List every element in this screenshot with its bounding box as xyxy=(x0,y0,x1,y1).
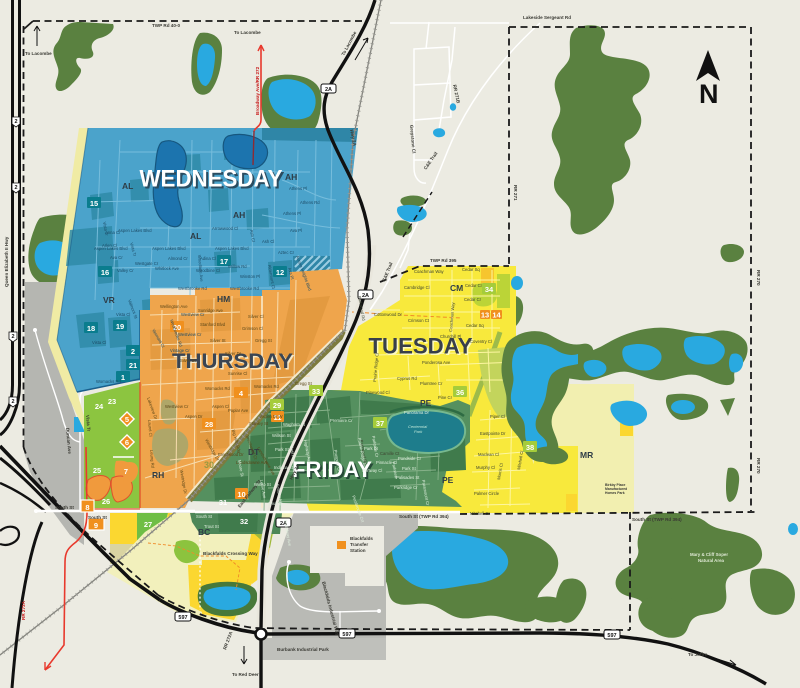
svg-text:2: 2 xyxy=(131,347,135,356)
svg-text:8: 8 xyxy=(85,503,89,512)
svg-text:AH: AH xyxy=(285,172,297,182)
svg-text:TWP Rd 40-0: TWP Rd 40-0 xyxy=(152,23,180,28)
svg-text:Blackfalds: Blackfalds xyxy=(350,536,373,541)
svg-text:TWP Rd 395: TWP Rd 395 xyxy=(430,258,457,263)
svg-text:Gregg St: Gregg St xyxy=(295,381,313,386)
svg-text:Womacks Rd: Womacks Rd xyxy=(205,386,230,391)
svg-text:Arrowwood Cl: Arrowwood Cl xyxy=(212,226,238,231)
svg-text:Panorama Dr: Panorama Dr xyxy=(404,410,430,415)
svg-text:5: 5 xyxy=(125,415,129,424)
svg-text:To Red Deer: To Red Deer xyxy=(232,672,259,677)
svg-text:Trout St: Trout St xyxy=(204,524,220,529)
svg-text:Station: Station xyxy=(350,548,366,553)
svg-text:South St: South St xyxy=(196,514,213,519)
svg-text:RR 270: RR 270 xyxy=(756,270,761,286)
svg-text:2A: 2A xyxy=(325,87,332,93)
svg-text:Vintage Cr: Vintage Cr xyxy=(170,348,190,353)
svg-text:Transfer: Transfer xyxy=(350,542,368,547)
svg-text:Pine Cr: Pine Cr xyxy=(438,395,453,400)
svg-text:Blackfalds Crossing Way: Blackfalds Crossing Way xyxy=(203,551,258,556)
svg-text:33: 33 xyxy=(312,387,320,396)
svg-text:25: 25 xyxy=(93,466,101,475)
svg-text:Westbrooke Rd: Westbrooke Rd xyxy=(178,286,207,291)
svg-text:15: 15 xyxy=(90,199,98,208)
svg-text:PE: PE xyxy=(442,475,454,485)
svg-text:28: 28 xyxy=(205,420,213,429)
svg-text:Stanford Blvd: Stanford Blvd xyxy=(200,322,226,327)
svg-text:Silver St: Silver St xyxy=(210,338,226,343)
svg-text:Eastpointe Dr: Eastpointe Dr xyxy=(480,431,506,436)
svg-text:Premiere Cr: Premiere Cr xyxy=(330,418,353,423)
svg-text:Silver Dr: Silver Dr xyxy=(225,351,242,356)
svg-text:Palmer Circle: Palmer Circle xyxy=(474,491,500,496)
svg-text:32: 32 xyxy=(240,517,248,526)
svg-text:AL: AL xyxy=(122,181,133,191)
svg-text:Silver Cl: Silver Cl xyxy=(248,314,264,319)
svg-text:Cedar Cr: Cedar Cr xyxy=(464,297,482,302)
svg-text:Indiana St: Indiana St xyxy=(274,465,294,470)
svg-text:Aspen Lakes Blvd: Aspen Lakes Blvd xyxy=(152,246,186,251)
svg-text:2: 2 xyxy=(14,119,17,125)
svg-text:N: N xyxy=(699,79,719,109)
svg-text:Natural Area: Natural Area xyxy=(698,558,725,563)
svg-text:Parkridge Cr: Parkridge Cr xyxy=(394,485,418,490)
svg-text:HM: HM xyxy=(217,294,230,304)
svg-text:CM: CM xyxy=(450,283,463,293)
svg-text:Broadway Ave/RR 272: Broadway Ave/RR 272 xyxy=(255,66,260,115)
svg-text:Plumtree Cr: Plumtree Cr xyxy=(420,381,443,386)
svg-text:Piper Cl: Piper Cl xyxy=(490,414,505,419)
svg-text:31: 31 xyxy=(219,498,227,507)
svg-text:597: 597 xyxy=(342,632,351,638)
svg-text:To Lacombe: To Lacombe xyxy=(25,51,52,56)
svg-text:To Joffre: To Joffre xyxy=(688,652,708,657)
svg-text:RR 273A: RR 273A xyxy=(21,600,26,620)
svg-text:13: 13 xyxy=(481,311,489,320)
svg-text:PE: PE xyxy=(420,398,432,408)
svg-text:597: 597 xyxy=(607,633,616,639)
svg-text:34: 34 xyxy=(485,285,494,294)
svg-text:Aspen Dr: Aspen Dr xyxy=(185,414,203,419)
svg-text:2: 2 xyxy=(11,334,14,340)
svg-text:29: 29 xyxy=(273,401,281,410)
svg-text:36: 36 xyxy=(456,388,464,397)
svg-text:Winston Pl: Winston Pl xyxy=(240,274,260,279)
svg-text:Arlen Cl: Arlen Cl xyxy=(102,243,117,248)
svg-text:Coachman Way: Coachman Way xyxy=(414,269,445,274)
svg-text:Ava Cr: Ava Cr xyxy=(110,255,123,260)
svg-text:Waghorn St: Waghorn St xyxy=(283,422,306,427)
svg-text:To Lacombe: To Lacombe xyxy=(234,30,261,35)
svg-text:1: 1 xyxy=(121,373,125,382)
svg-text:South St (TWP Rd 394): South St (TWP Rd 394) xyxy=(399,514,449,519)
svg-text:Maclean Cl: Maclean Cl xyxy=(478,452,499,457)
svg-text:Aspen Lakes Blvd: Aspen Lakes Blvd xyxy=(215,246,249,251)
svg-text:Westview Cr: Westview Cr xyxy=(165,404,189,409)
svg-text:Mary & Cliff Soper: Mary & Cliff Soper xyxy=(690,552,728,557)
svg-text:18: 18 xyxy=(87,324,95,333)
svg-text:Aspen Lakes Blvd: Aspen Lakes Blvd xyxy=(118,228,152,233)
svg-text:12: 12 xyxy=(276,268,284,277)
svg-text:Westview Cr: Westview Cr xyxy=(178,332,202,337)
svg-text:30: 30 xyxy=(204,460,214,470)
svg-text:Stanley St: Stanley St xyxy=(249,421,269,426)
svg-text:Pondside Cr: Pondside Cr xyxy=(398,456,422,461)
svg-text:19: 19 xyxy=(116,322,124,331)
svg-text:Westbrooke Rd: Westbrooke Rd xyxy=(230,286,259,291)
svg-text:Athens Pl: Athens Pl xyxy=(289,186,307,191)
svg-text:RR 271: RR 271 xyxy=(513,185,518,201)
svg-text:Athens Rd: Athens Rd xyxy=(300,200,320,205)
svg-text:Valley Cr: Valley Cr xyxy=(117,268,134,273)
svg-text:2: 2 xyxy=(14,185,17,191)
svg-text:Cambridge Cl: Cambridge Cl xyxy=(404,285,430,290)
svg-text:Sunrise Cl: Sunrise Cl xyxy=(228,371,247,376)
svg-text:Park St: Park St xyxy=(402,466,417,471)
svg-text:Silver St: Silver St xyxy=(180,358,196,363)
svg-text:VR: VR xyxy=(103,295,115,305)
svg-text:Aztec Cr: Aztec Cr xyxy=(278,250,295,255)
svg-text:WEDNESDAY: WEDNESDAY xyxy=(140,166,283,193)
svg-text:Cedar Cl: Cedar Cl xyxy=(465,283,482,288)
svg-text:AL: AL xyxy=(190,231,201,241)
svg-text:RH: RH xyxy=(152,470,164,480)
svg-text:South St: South St xyxy=(55,505,74,510)
svg-text:Mitchell Cr: Mitchell Cr xyxy=(470,511,490,516)
svg-text:South St (TWP Rd 394): South St (TWP Rd 394) xyxy=(632,517,682,522)
svg-text:Homes Park: Homes Park xyxy=(605,491,625,495)
svg-text:Sunridge Ave: Sunridge Ave xyxy=(198,308,224,313)
svg-text:Womacks Rd: Womacks Rd xyxy=(254,384,279,389)
svg-text:14: 14 xyxy=(492,311,501,320)
svg-text:Gregg St: Gregg St xyxy=(255,338,273,343)
svg-text:Grimson Cl: Grimson Cl xyxy=(242,326,263,331)
svg-text:Whitlock Ave: Whitlock Ave xyxy=(155,266,180,271)
svg-text:Willow Rd: Willow Rd xyxy=(228,264,247,269)
svg-text:23: 23 xyxy=(108,397,116,406)
svg-text:MR: MR xyxy=(580,450,593,460)
svg-text:Cottonwood Dr: Cottonwood Dr xyxy=(374,312,403,317)
svg-text:Brentwood Dr: Brentwood Dr xyxy=(218,452,244,457)
svg-text:Womacks Rd: Womacks Rd xyxy=(96,379,121,384)
svg-text:7: 7 xyxy=(124,467,128,476)
svg-text:Queen Elizabeth II Hwy: Queen Elizabeth II Hwy xyxy=(4,236,9,287)
svg-text:24: 24 xyxy=(95,402,104,411)
svg-text:9: 9 xyxy=(94,521,98,530)
svg-text:2: 2 xyxy=(11,399,14,405)
svg-text:Burbank Industrial Park: Burbank Industrial Park xyxy=(277,647,329,652)
svg-text:Lakeside Sergeant Rd: Lakeside Sergeant Rd xyxy=(523,15,571,20)
svg-text:17: 17 xyxy=(220,257,228,266)
svg-text:Aspen Cl: Aspen Cl xyxy=(212,404,229,409)
svg-text:Athens Pl: Athens Pl xyxy=(283,211,301,216)
svg-text:26: 26 xyxy=(102,497,110,506)
svg-text:Vista Cl: Vista Cl xyxy=(92,340,106,345)
svg-text:Park: Park xyxy=(414,429,423,434)
svg-text:Ash Cl: Ash Cl xyxy=(262,239,274,244)
svg-text:Vista Cl: Vista Cl xyxy=(116,312,130,317)
svg-text:Pinewood Cl: Pinewood Cl xyxy=(366,390,390,395)
svg-text:Willson St: Willson St xyxy=(272,433,291,438)
svg-text:Churchill Pl: Churchill Pl xyxy=(440,334,461,339)
svg-text:FRIDAY: FRIDAY xyxy=(292,457,372,482)
svg-text:Wellington Ave: Wellington Ave xyxy=(160,304,188,309)
svg-text:Cedar Sq: Cedar Sq xyxy=(466,323,484,328)
svg-text:Poplar Ave: Poplar Ave xyxy=(228,408,249,413)
svg-text:RR 270: RR 270 xyxy=(756,458,761,474)
svg-text:Aspen Dr W: Aspen Dr W xyxy=(260,414,283,419)
svg-text:16: 16 xyxy=(101,268,109,277)
svg-text:Almond Cr: Almond Cr xyxy=(168,256,188,261)
svg-text:27: 27 xyxy=(144,520,152,529)
svg-text:AH: AH xyxy=(233,210,245,220)
svg-text:Crimson Ct: Crimson Ct xyxy=(408,318,430,323)
svg-text:Ava Pl: Ava Pl xyxy=(290,228,302,233)
svg-text:597: 597 xyxy=(178,615,187,621)
svg-text:South St: South St xyxy=(88,515,107,520)
svg-text:37: 37 xyxy=(376,419,384,428)
svg-text:6: 6 xyxy=(125,438,129,447)
svg-text:Ponderosa Ave: Ponderosa Ave xyxy=(422,360,451,365)
svg-text:Park St: Park St xyxy=(275,447,290,452)
svg-text:Cyprus Rd: Cyprus Rd xyxy=(397,376,417,381)
svg-text:38: 38 xyxy=(526,443,534,452)
svg-text:Coventry Cl: Coventry Cl xyxy=(470,339,492,344)
svg-text:Cedar Sq: Cedar Sq xyxy=(462,267,480,272)
svg-text:21: 21 xyxy=(129,361,137,370)
svg-text:Murphy Cl: Murphy Cl xyxy=(476,465,495,470)
